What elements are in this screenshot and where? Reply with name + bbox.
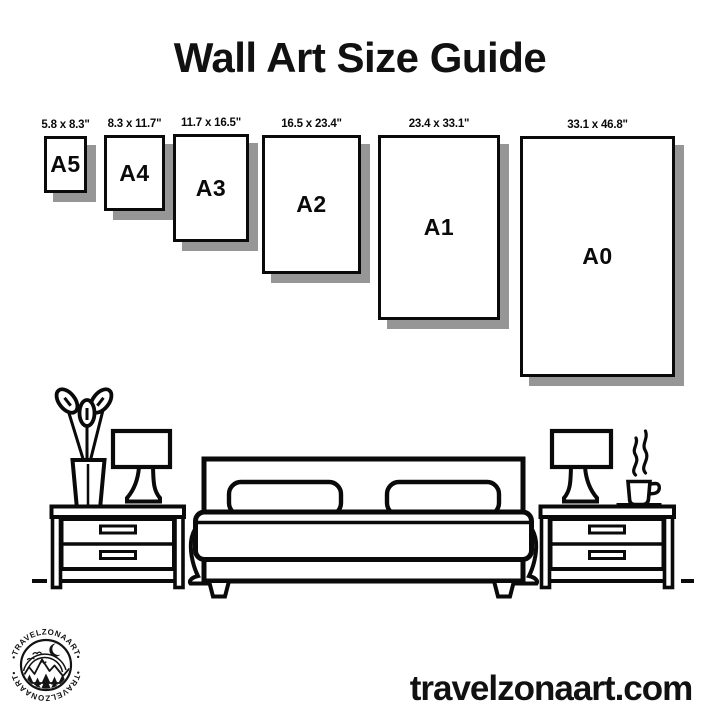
size-dimensions-a3: 11.7 x 16.5" [181,117,241,129]
size-frame-a2: 16.5 x 23.4" A2 [262,135,361,274]
size-dimensions-a0: 33.1 x 46.8" [567,119,628,131]
table-lamp-right-icon [552,431,611,502]
flower-vase-icon [52,385,115,509]
size-label-a4: A4 [119,160,149,187]
size-label-a5: A5 [50,151,80,178]
size-frame-a4: 8.3 x 11.7" A4 [104,135,165,211]
bed-icon [190,459,537,597]
size-dimensions-a4: 8.3 x 11.7" [108,118,162,130]
table-lamp-left-icon [113,431,170,502]
coffee-cup-icon [628,431,659,505]
bed-base [204,560,523,582]
size-frame-a1: 23.4 x 33.1" A1 [378,135,500,320]
website-url: travelzonaart.com [410,669,693,709]
size-label-a2: A2 [296,191,326,218]
size-frame-a3: 11.7 x 16.5" A3 [173,134,249,242]
size-dimensions-a1: 23.4 x 33.1" [409,118,470,130]
size-dimensions-a5: 5.8 x 8.3" [41,119,89,131]
size-frame-a0: 33.1 x 46.8" A0 [520,136,675,377]
size-label-a0: A0 [582,243,612,270]
size-frame-a5: 5.8 x 8.3" A5 [44,136,87,193]
size-label-a3: A3 [196,175,226,202]
size-dimensions-a2: 16.5 x 23.4" [281,118,342,130]
nightstand-left-icon [52,507,185,588]
steam-icon [634,431,647,475]
page-title: Wall Art Size Guide [0,34,720,82]
bedroom-illustration [0,380,720,610]
wall-art-size-guide-poster: Wall Art Size Guide 5.8 x 8.3" A5 8.3 x … [0,0,720,720]
travelzonaart-logo: •TRAVELZONAART• •TRAVELZONAART• [6,617,88,714]
mattress [196,512,532,560]
size-label-a1: A1 [424,214,454,241]
nightstand-right-icon [541,505,675,588]
